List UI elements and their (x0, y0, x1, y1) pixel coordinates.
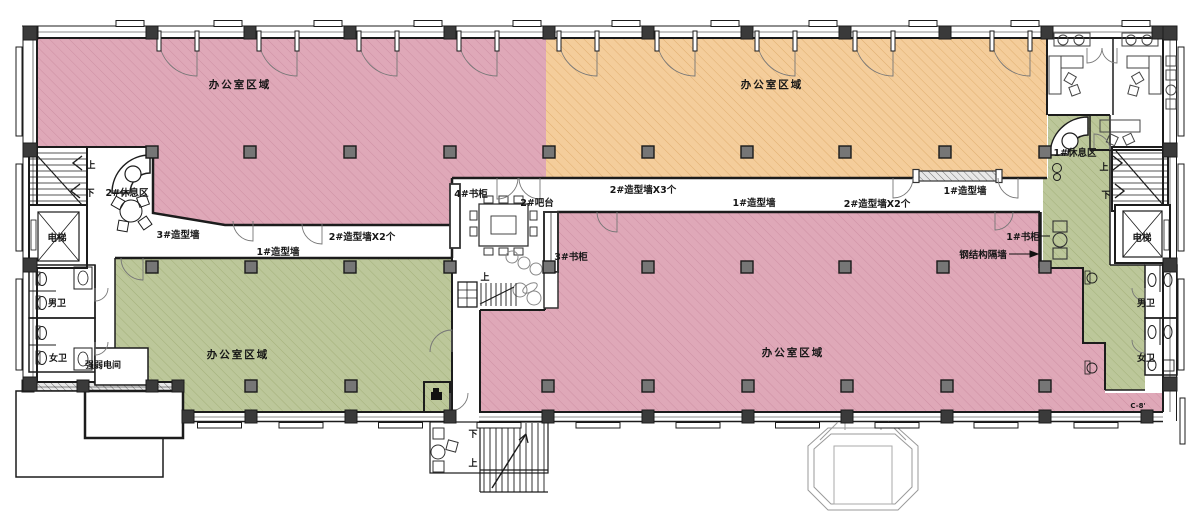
label-rest-area-2: 2#休息区 (105, 187, 149, 199)
label-up-stair-nw: 上 (86, 159, 95, 171)
door-jamb (257, 31, 261, 51)
label-feature-wall-1-c: 1#造型墙 (943, 185, 987, 197)
door-jamb (891, 31, 895, 51)
office-chair (1132, 72, 1144, 84)
toilet-icon (38, 327, 47, 340)
column-marker (642, 410, 654, 423)
column-marker (839, 261, 851, 273)
floor-plan-drawing: 办公室区域 办公室区域 办公室区域 办公室区域 2#休息区 1#休息区 电梯 电… (0, 0, 1200, 520)
toilet-icon (1164, 274, 1172, 287)
label-grid-ref: C-8' (1130, 402, 1145, 410)
floor-plan-canvas: 办公室区域 办公室区域 办公室区域 办公室区域 2#休息区 1#休息区 电梯 电… (0, 0, 1200, 520)
zone-office-ne (546, 38, 1047, 178)
window-sill (16, 164, 22, 251)
column-marker (23, 143, 37, 157)
down-arrow-chevron (71, 184, 80, 198)
up-arrow-chevron (1113, 156, 1122, 170)
window-sill (711, 21, 739, 27)
column-marker (741, 146, 753, 158)
window-sill (414, 21, 442, 27)
label-bar-2: 2#吧台 (520, 197, 554, 209)
column-marker (1163, 258, 1177, 272)
column-marker (146, 261, 158, 273)
window-sill (1011, 21, 1039, 27)
column-marker (742, 410, 754, 423)
column-marker (642, 26, 654, 39)
door-arc (302, 224, 322, 244)
window-sill (116, 21, 144, 27)
outdoor-chair (446, 440, 458, 452)
column-marker (345, 410, 357, 423)
door-arc (95, 288, 108, 301)
column-marker (1141, 410, 1153, 423)
column-marker (172, 380, 184, 392)
cabinet (1166, 56, 1176, 66)
sw-canopy (16, 391, 183, 477)
column-marker (1039, 261, 1051, 273)
column-marker (1163, 377, 1177, 391)
window-sill (776, 423, 820, 429)
door-jamb (693, 31, 697, 51)
column-marker (23, 377, 37, 391)
window-sill (974, 423, 1018, 429)
column-marker (345, 380, 357, 392)
outdoor-chair (433, 428, 444, 439)
label-feature-wall-2x2-b: 2#造型墙X2个 (844, 198, 911, 210)
desk (1061, 56, 1083, 68)
column-marker (444, 146, 456, 158)
window-sill (379, 423, 423, 429)
column-marker (543, 261, 555, 273)
label-up-stair-ne: 上 (1099, 161, 1108, 173)
window-sill (1178, 279, 1184, 370)
window-sill (16, 47, 22, 136)
chair (138, 216, 152, 230)
door-jamb (853, 31, 857, 51)
column-marker (146, 26, 158, 39)
equipment-icon (431, 392, 442, 400)
office-chair (1069, 85, 1081, 97)
toilet-icon (1164, 326, 1172, 339)
window-sill (909, 21, 937, 27)
label-bookcase-4: 4#书柜 (454, 188, 488, 200)
label-down-entrance: 下 (468, 429, 477, 440)
label-rest-area-1: 1#休息区 (1053, 147, 1097, 159)
label-elevator-left: 电梯 (47, 232, 67, 244)
door-jamb (395, 31, 399, 51)
column-marker (444, 26, 456, 39)
down-arrow-chevron (1115, 184, 1124, 198)
window-sill (1178, 164, 1184, 251)
column-marker (146, 146, 158, 158)
window-sill (16, 279, 22, 370)
column-marker (642, 146, 654, 158)
door-jamb (557, 31, 561, 51)
label-up-entrance: 上 (468, 457, 477, 469)
column-marker (245, 380, 257, 392)
desk (1149, 56, 1161, 94)
window-sill (809, 21, 837, 27)
se-canopy-octagon (808, 422, 918, 510)
label-mens-wc-left: 男卫 (48, 298, 66, 309)
label-feature-wall-2x3: 2#造型墙X3个 (610, 184, 677, 196)
office-chair (1123, 133, 1135, 145)
sink-icon (1163, 360, 1174, 371)
column-marker (23, 258, 37, 272)
window-sill (1178, 47, 1184, 136)
label-womens-wc-left: 女卫 (49, 352, 67, 364)
meeting-table (479, 204, 528, 246)
desk (1049, 56, 1061, 94)
window-sill (676, 423, 720, 429)
label-feature-wall-3: 3#造型墙 (156, 229, 200, 241)
column-marker (444, 410, 456, 423)
label-office-area-nw: 办公室区域 (209, 78, 272, 91)
column-marker (839, 146, 851, 158)
label-feature-wall-1-a: 1#造型墙 (256, 246, 300, 258)
label-electrical-room: 强弱电间 (85, 359, 121, 371)
column-marker (182, 410, 194, 423)
column-marker (741, 261, 753, 273)
door-jamb (1028, 31, 1032, 51)
door-arc (1087, 48, 1102, 63)
sink-counter (74, 267, 92, 289)
chair (117, 220, 129, 232)
column-marker (23, 26, 37, 40)
toilet-icon (38, 297, 47, 310)
column-marker (939, 146, 951, 158)
column-marker (642, 261, 654, 273)
label-up-hall: 上 (480, 271, 489, 283)
door-jamb (357, 31, 361, 51)
column-marker (741, 26, 753, 39)
column-marker (1152, 26, 1164, 39)
door-jamb (990, 31, 994, 51)
window-sill (576, 423, 620, 429)
window-sill (875, 423, 919, 429)
column-marker (941, 410, 953, 423)
office-chair (1128, 85, 1139, 96)
stair-ne (1112, 147, 1168, 211)
bar-counter (544, 272, 558, 308)
door-jamb (457, 31, 461, 51)
door-jamb (595, 31, 599, 51)
window-sill (1122, 21, 1150, 27)
label-elevator-right: 电梯 (1132, 232, 1152, 244)
label-office-area-se: 办公室区域 (762, 346, 825, 359)
window-sill (198, 423, 242, 429)
column-marker (344, 26, 356, 39)
toilet-icon (1148, 326, 1156, 339)
toilet-icon (38, 273, 47, 286)
column-marker (1039, 380, 1051, 392)
outdoor-table (431, 445, 445, 459)
window-sill (1180, 398, 1185, 444)
column-marker (1041, 26, 1053, 39)
column-marker (939, 26, 951, 39)
window-sill (513, 21, 541, 27)
column-marker (1039, 410, 1051, 423)
window-sill (477, 423, 521, 429)
cabinet (1166, 99, 1176, 109)
toilet-icon (38, 352, 47, 365)
toilet-icon (1148, 274, 1156, 287)
column-marker (839, 26, 851, 39)
door-jamb (495, 31, 499, 51)
column-marker (344, 261, 356, 273)
column-marker (1039, 146, 1051, 158)
label-bookcase-1: 1#书柜 (1006, 231, 1040, 243)
door-arc (893, 178, 913, 198)
column-marker (1163, 143, 1177, 157)
door-jamb (655, 31, 659, 51)
column-marker (841, 380, 853, 392)
column-marker (642, 380, 654, 392)
label-womens-wc-right: 女卫 (1137, 352, 1155, 364)
label-bookcase-3: 3#书柜 (554, 251, 588, 263)
column-marker (245, 261, 257, 273)
entrance-stair (430, 422, 548, 492)
feature-wall-1-element (913, 170, 1002, 183)
column-marker (841, 410, 853, 423)
desk (1127, 56, 1149, 68)
column-marker (941, 380, 953, 392)
door-jamb (195, 31, 199, 51)
label-office-area-sw: 办公室区域 (207, 348, 270, 361)
column-marker (77, 380, 89, 392)
column-marker (244, 146, 256, 158)
column-marker (244, 26, 256, 39)
up-arrow-chevron (73, 156, 82, 170)
label-feature-wall-2x2-a: 2#造型墙X2个 (329, 231, 396, 243)
column-marker (245, 410, 257, 423)
column-marker (146, 380, 158, 392)
label-steel-partition: 钢结构隔墙 (959, 249, 1007, 261)
label-feature-wall-1-b: 1#造型墙 (732, 197, 776, 209)
outdoor-chair (433, 461, 444, 472)
column-marker (444, 261, 456, 273)
column-marker (937, 261, 949, 273)
label-mens-wc-right: 男卫 (1137, 298, 1155, 309)
window-sill (214, 21, 242, 27)
label-down-stair-nw: 下 (85, 188, 94, 199)
label-office-area-ne: 办公室区域 (741, 78, 804, 91)
cabinet (1166, 70, 1176, 80)
door-jamb (755, 31, 759, 51)
column-marker (543, 26, 555, 39)
hall-stair (458, 282, 516, 307)
label-down-stair-ne: 下 (1101, 190, 1110, 201)
window-sill (1074, 423, 1118, 429)
column-marker (543, 146, 555, 158)
column-marker (542, 410, 554, 423)
column-marker (742, 380, 754, 392)
door-arc (1102, 48, 1117, 63)
window-sill (314, 21, 342, 27)
window-sill (612, 21, 640, 27)
column-marker (542, 380, 554, 392)
column-marker (344, 146, 356, 158)
door-jamb (295, 31, 299, 51)
window-sill (279, 423, 323, 429)
office-chair (1064, 73, 1076, 85)
column-marker (1163, 26, 1177, 40)
door-jamb (793, 31, 797, 51)
